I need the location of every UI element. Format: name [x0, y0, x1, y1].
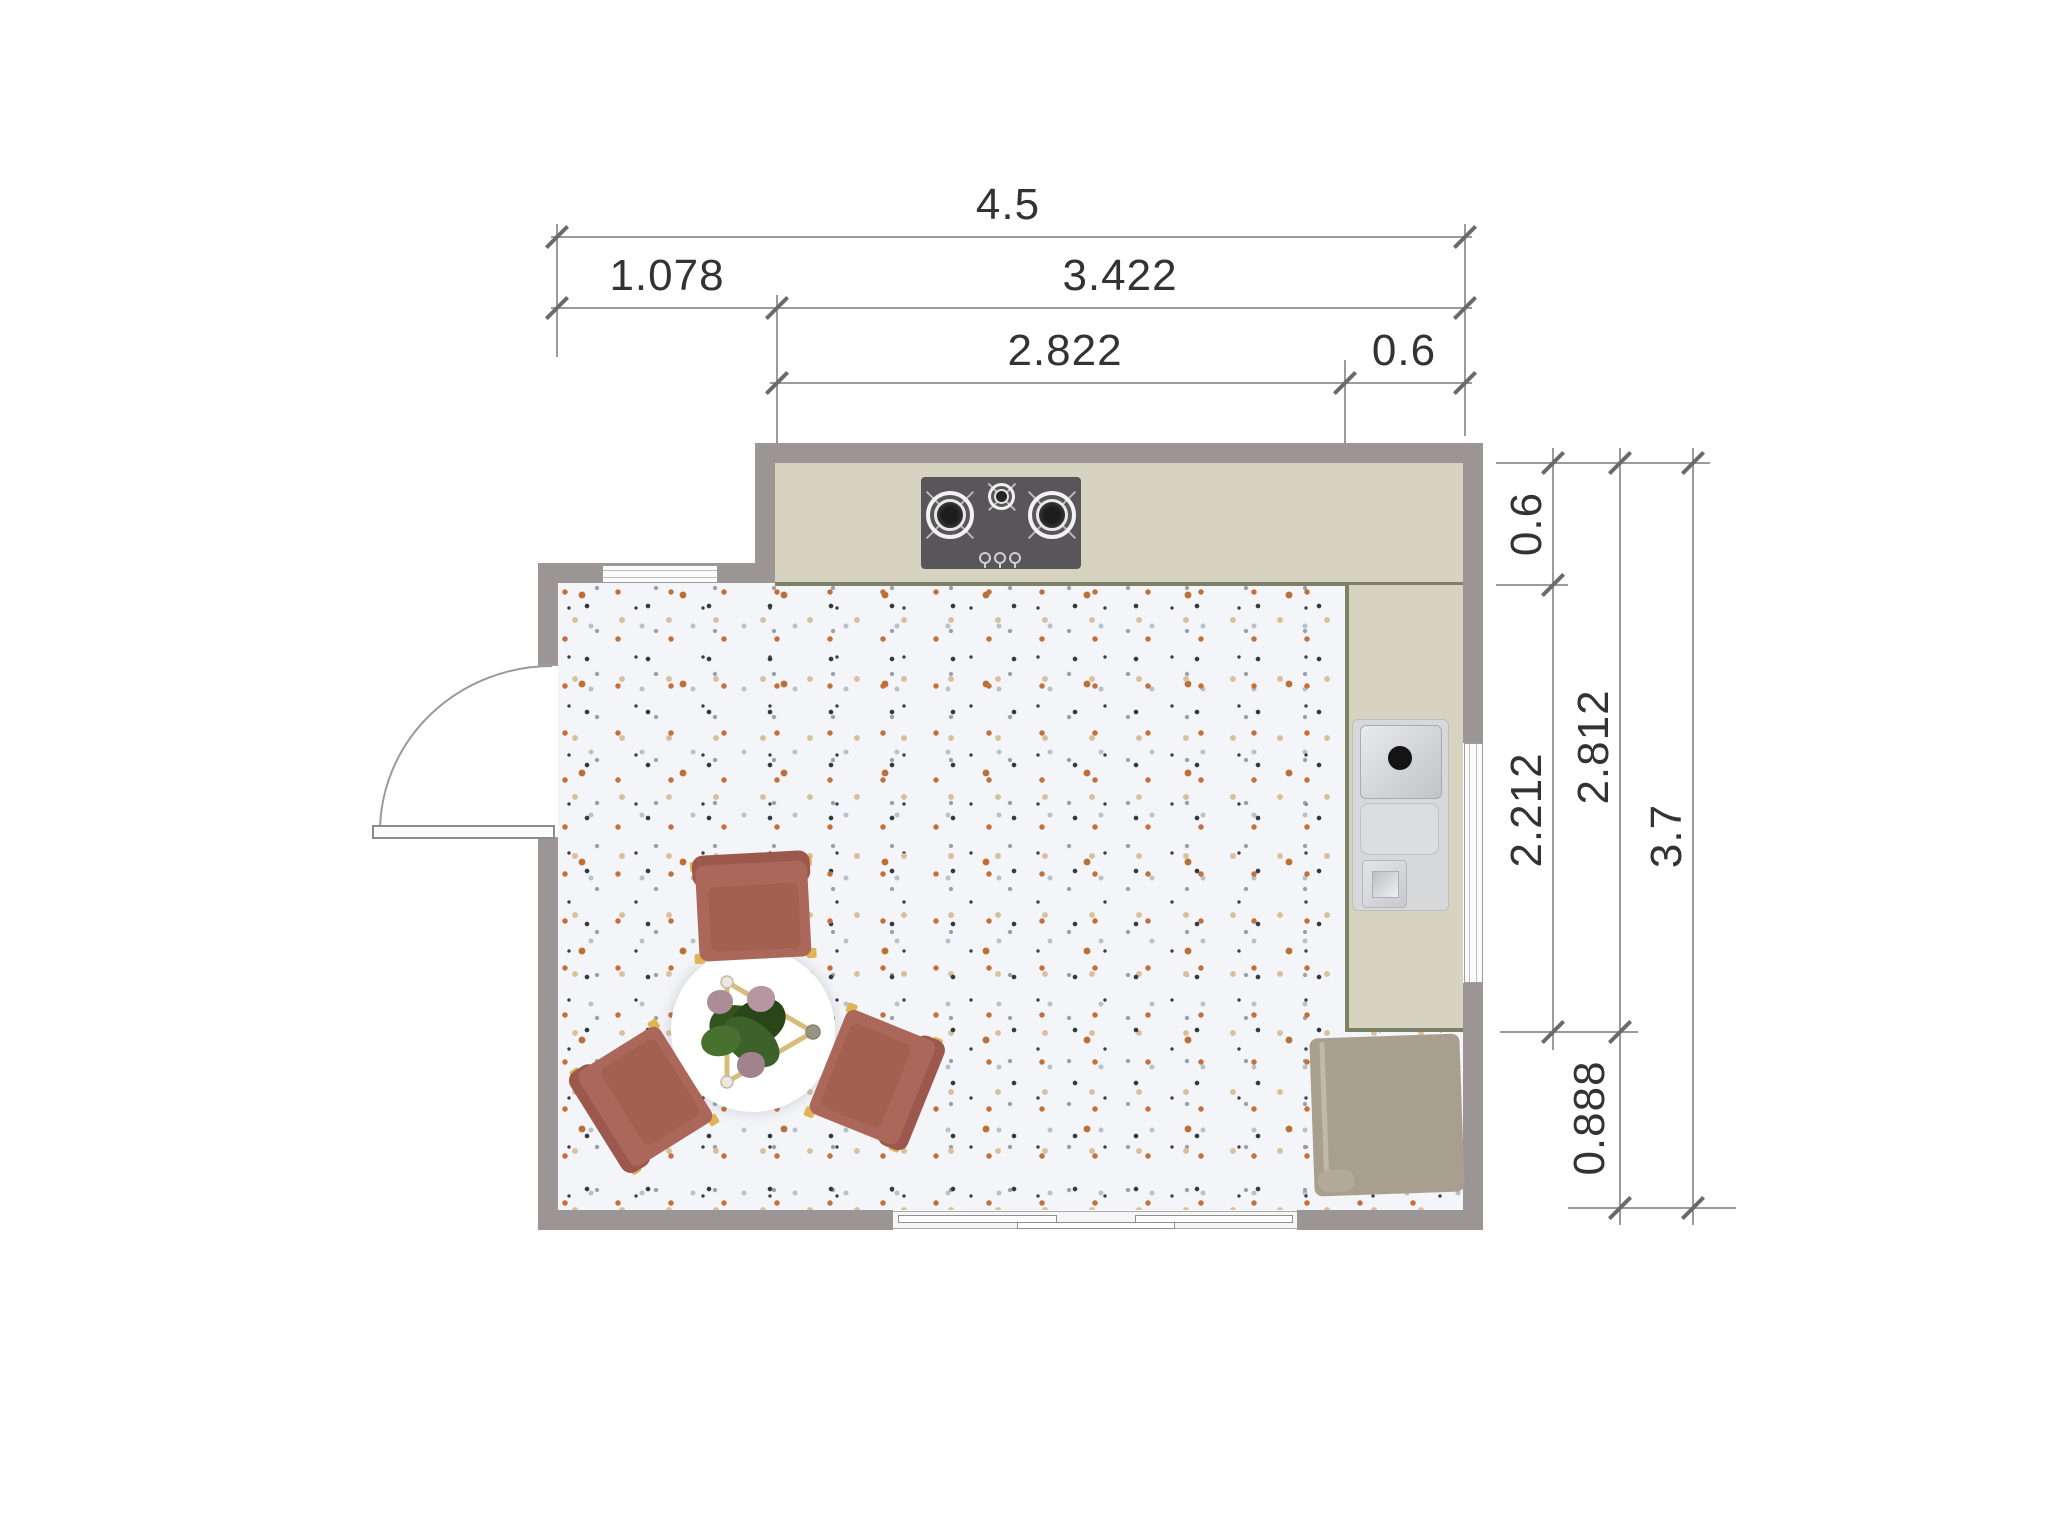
extension-line — [1496, 462, 1710, 464]
door-swing-arc — [360, 650, 560, 840]
dim-label-side-counter-length: 2.212 — [1502, 752, 1552, 867]
dim-label-left-section: 1.078 — [609, 251, 724, 301]
wall-top-upper — [755, 443, 1483, 463]
dim-label-counter-run: 2.822 — [1007, 326, 1122, 376]
wall-right-upper — [1463, 443, 1483, 743]
counter-edge — [1345, 1028, 1463, 1032]
sink-half-basin — [1362, 860, 1407, 908]
small-burner-icon — [994, 489, 1009, 504]
kitchen-counter-top — [775, 463, 1463, 585]
floor-plan-canvas: 4.5 1.078 3.422 2.822 0.6 0.6 2.212 2.81… — [0, 0, 2048, 1536]
window-right — [1464, 743, 1483, 983]
sliding-door — [893, 1211, 1297, 1229]
wall-left-lower — [538, 839, 558, 1230]
extension-line — [1568, 1207, 1736, 1209]
rug-tab — [1318, 1169, 1355, 1192]
burner-icon — [1036, 499, 1068, 531]
window-glass-line — [1469, 744, 1470, 982]
dimension-line-row2 — [551, 307, 1472, 309]
sink-drain-icon — [1388, 746, 1412, 770]
sliding-door-panel — [1017, 1222, 1175, 1229]
dimension-line-col2 — [1619, 448, 1621, 1225]
rug — [1309, 1033, 1464, 1196]
sink-basin — [1360, 725, 1442, 799]
dim-label-side-counter-total: 2.812 — [1569, 689, 1619, 804]
cooktop-knob-icon — [979, 552, 991, 564]
cooktop-knob-icon — [1009, 552, 1021, 564]
window-glass-line — [603, 570, 717, 571]
extension-line — [1496, 584, 1568, 586]
wall-bottom-right — [1297, 1210, 1483, 1230]
dim-label-upper-section: 3.422 — [1062, 251, 1177, 301]
dim-label-overall-width: 4.5 — [976, 180, 1040, 230]
dim-label-top-counter-depth: 0.6 — [1502, 492, 1552, 556]
wall-notch — [755, 443, 775, 583]
extension-line — [556, 224, 558, 357]
window-glass-line — [1476, 744, 1477, 982]
extension-line — [776, 295, 778, 443]
window-glass-line — [603, 577, 717, 578]
dimension-line-total-width — [551, 236, 1472, 238]
wall-bottom-left — [538, 1210, 893, 1230]
dim-label-right-counter-width: 0.6 — [1372, 326, 1436, 376]
cooktop — [921, 477, 1081, 569]
burner-icon — [934, 499, 966, 531]
door-leaf — [372, 825, 555, 839]
counter-edge — [1345, 585, 1349, 1032]
extension-line — [1344, 360, 1346, 443]
extension-line — [1464, 224, 1466, 436]
cooktop-knob-icon — [994, 552, 1006, 564]
dim-label-below-counter-gap: 0.888 — [1565, 1060, 1615, 1175]
window-top-left — [602, 565, 718, 583]
wall-right-lower — [1463, 983, 1483, 1230]
armchair-top — [691, 850, 814, 962]
dim-label-overall-height: 3.7 — [1642, 804, 1692, 868]
dimension-line-row3 — [770, 382, 1472, 384]
sink-drainboard — [1360, 803, 1439, 855]
dimension-line-col3 — [1692, 448, 1694, 1225]
dimension-line-col1 — [1552, 448, 1554, 1050]
sink-unit — [1352, 719, 1449, 911]
